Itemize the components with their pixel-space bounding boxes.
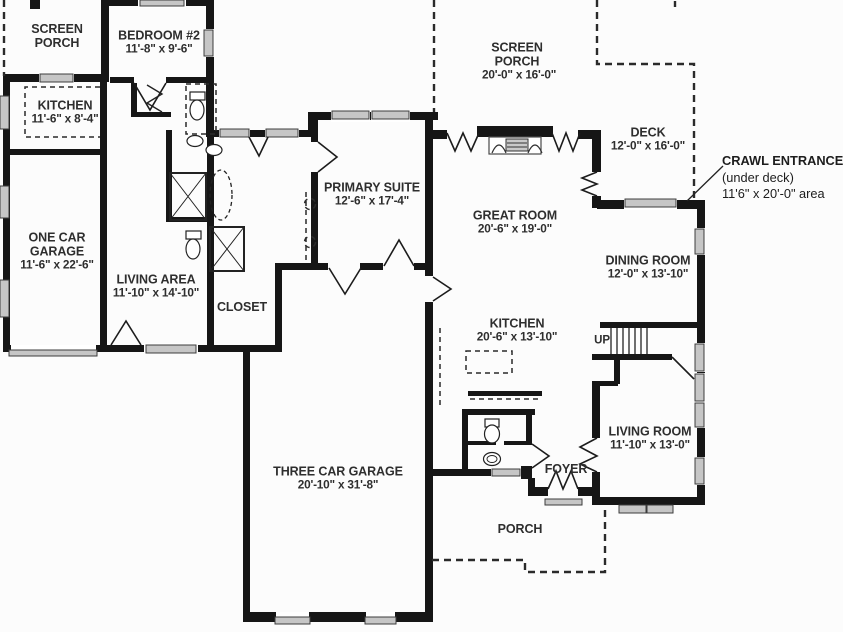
screen-porch-door-left — [447, 133, 479, 151]
deck-door — [582, 172, 597, 196]
living-area-door — [111, 321, 141, 345]
toilet-icon — [186, 231, 201, 239]
kitchen-counter-dashed — [25, 87, 100, 137]
front-door — [548, 471, 578, 489]
porch-dashed-outline — [432, 505, 605, 572]
kitchen-hall-door — [329, 268, 361, 294]
hall-door — [249, 137, 268, 156]
primary-entry-door — [318, 142, 337, 172]
kitchen-island-dashed — [466, 351, 512, 373]
screen-porch-door-right — [552, 133, 580, 151]
foyer-living-room-door — [580, 438, 597, 472]
primary-suite-door — [384, 240, 414, 266]
crawl-entrance-leader-line — [687, 166, 723, 201]
garage-kitchen-door — [433, 277, 451, 301]
walls — [3, 0, 705, 622]
dining-living-door — [672, 357, 694, 379]
toilet-icon — [190, 92, 205, 100]
sink-icon — [206, 145, 222, 156]
floor-plan: SCREEN PORCH BEDROOM #211'-8" x 9'-6" KI… — [0, 0, 843, 632]
powder-room-door — [532, 444, 549, 468]
stairs — [611, 328, 647, 354]
fixtures — [147, 85, 501, 466]
deck-dashed-outline — [597, 0, 694, 202]
floor-plan-drawing — [0, 0, 843, 632]
fireplace-icon — [489, 137, 542, 154]
sink-icon — [187, 136, 203, 147]
